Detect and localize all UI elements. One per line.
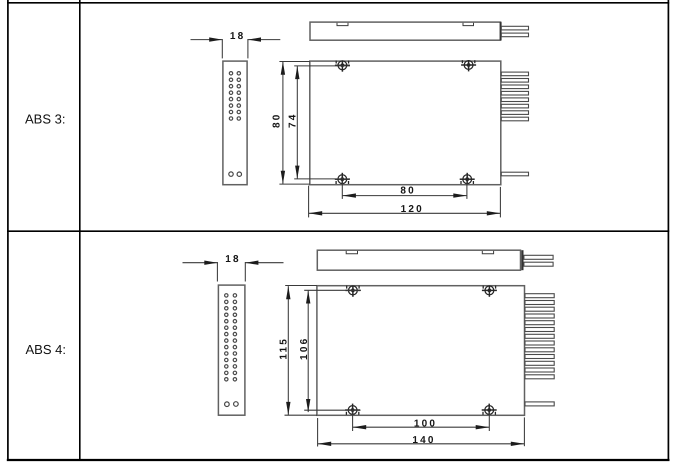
svg-text:115: 115 (279, 337, 290, 360)
svg-text:ABS 3:: ABS 3: (25, 112, 65, 127)
svg-text:ABS 4:: ABS 4: (26, 342, 66, 357)
svg-text:106: 106 (299, 337, 310, 360)
svg-text:100: 100 (414, 419, 437, 430)
svg-text:80: 80 (272, 112, 283, 128)
svg-text:80: 80 (400, 186, 416, 197)
svg-text:120: 120 (401, 204, 424, 215)
svg-text:74: 74 (287, 112, 298, 128)
svg-text:140: 140 (412, 435, 435, 446)
svg-text:18: 18 (230, 31, 246, 42)
svg-text:18: 18 (225, 254, 241, 265)
